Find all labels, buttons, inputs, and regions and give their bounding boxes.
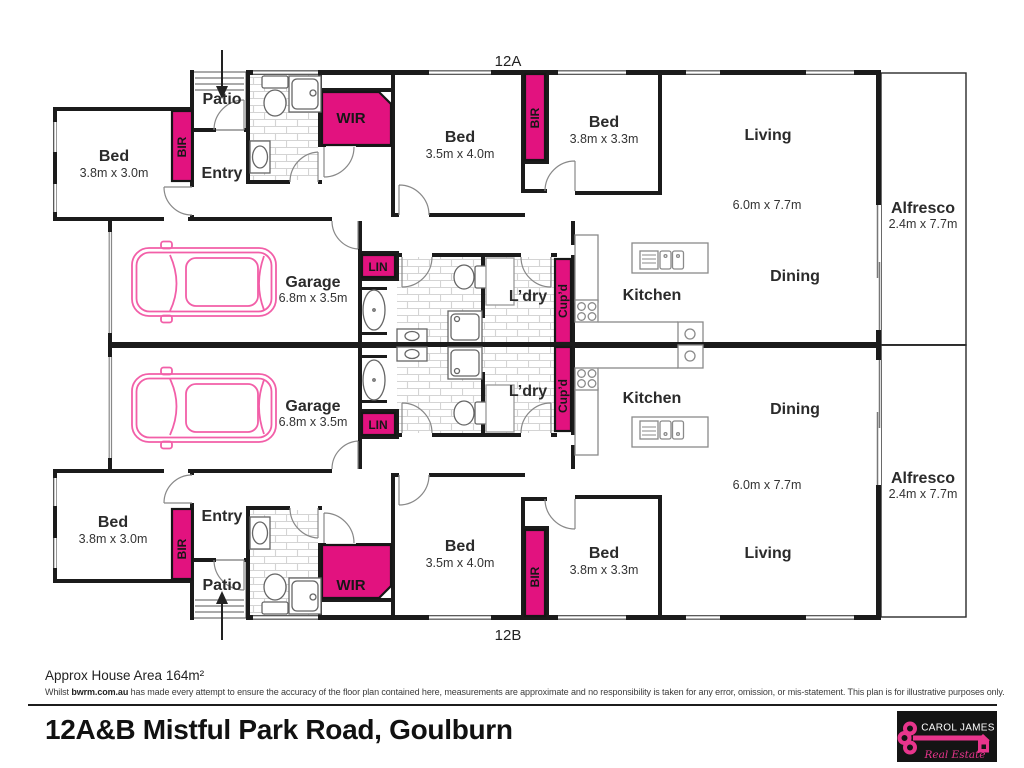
toilet-icon	[454, 265, 474, 289]
closet-label-bir: BIR	[528, 566, 542, 587]
closet-label-cupd: Cup’d	[556, 284, 570, 318]
closet-label-lin: LIN	[368, 418, 387, 432]
house-area-note: Approx House Area 164m²	[45, 668, 204, 683]
room-dim-garage: 6.8m x 3.5m	[279, 291, 348, 305]
room-label-bed: Bed	[589, 545, 619, 562]
closet-label-bir: BIR	[528, 107, 542, 128]
sink-bowl-icon	[673, 251, 684, 269]
room-label-bed: Bed	[98, 514, 128, 531]
sliding-door	[876, 205, 881, 330]
kitchen-counter	[575, 235, 598, 302]
room-label-entry: Entry	[202, 508, 243, 525]
garage-door	[109, 232, 111, 333]
room-label-laundry: L’dry	[509, 288, 547, 305]
room-label-garage: Garage	[285, 274, 340, 291]
room-label-laundry: L’dry	[509, 383, 547, 400]
agency-logo: CAROL JAMES Real Estate	[897, 711, 997, 762]
room-label-kitchen: Kitchen	[623, 287, 682, 304]
property-address-title: 12A&B Mistful Park Road, Goulburn	[45, 714, 513, 746]
room-dim-bed: 3.8m x 3.3m	[570, 563, 639, 577]
room-label-entry: Entry	[202, 165, 243, 182]
room-dim-bed: 3.5m x 4.0m	[426, 147, 495, 161]
room-label-living: Living	[744, 545, 791, 562]
closet-label-bir: BIR	[175, 538, 189, 559]
drainer-icon	[640, 251, 658, 269]
room-label-alfresco: Alfresco	[891, 470, 955, 487]
room-label-patio: Patio	[202, 577, 241, 594]
room-label-bed: Bed	[99, 148, 129, 165]
closet-label-bir: BIR	[175, 136, 189, 157]
logo-tagline: Real Estate	[923, 749, 985, 761]
room-label-dining: Dining	[770, 401, 820, 418]
room-label-living: Living	[744, 127, 791, 144]
disclaimer-source: bwrm.com.au	[71, 687, 128, 697]
room-label-dining: Dining	[770, 268, 820, 285]
room-dim-bed: 3.5m x 4.0m	[426, 556, 495, 570]
room-dim-bed: 3.8m x 3.0m	[79, 532, 148, 546]
room-label-patio: Patio	[202, 91, 241, 108]
room-label-kitchen: Kitchen	[623, 390, 682, 407]
disclaimer-rest: has made every attempt to ensure the acc…	[128, 687, 1004, 697]
room-dim-living: 6.0m x 7.7m	[733, 478, 802, 492]
floorplan-canvas: 12A 12B Bed 3.8m x 3.0m BIR Entry Patio …	[0, 0, 1024, 660]
room-dim-garage: 6.8m x 3.5m	[279, 415, 348, 429]
room-label-bed: Bed	[445, 538, 475, 555]
room-label-garage: Garage	[285, 398, 340, 415]
unit-label-12a: 12A	[495, 53, 522, 70]
closet-label-cupd: Cup’d	[556, 379, 570, 413]
unit-label-12b: 12B	[495, 627, 522, 644]
footer-divider	[28, 704, 997, 706]
logo-agency-name: CAROL JAMES	[921, 723, 995, 734]
room-dim-bed: 3.8m x 3.0m	[80, 166, 149, 180]
closet-label-wir: WIR	[336, 577, 365, 594]
sink-bowl-icon	[660, 251, 671, 269]
room-dim-alfresco: 2.4m x 7.7m	[889, 487, 958, 501]
room-dim-bed: 3.8m x 3.3m	[570, 132, 639, 146]
room-label-bed: Bed	[445, 129, 475, 146]
disclaimer-text: Whilst bwrm.com.au has made every attemp…	[45, 687, 1005, 697]
prep-sink-cabinet	[678, 322, 703, 345]
room-label-alfresco: Alfresco	[891, 200, 955, 217]
car-icon	[132, 242, 276, 323]
floorplan-page: 12A 12B Bed 3.8m x 3.0m BIR Entry Patio …	[0, 0, 1024, 768]
toilet-icon	[262, 76, 288, 88]
closet-label-wir: WIR	[336, 110, 365, 127]
room-dim-alfresco: 2.4m x 7.7m	[889, 217, 958, 231]
patio-area	[193, 50, 246, 130]
room-dim-living: 6.0m x 7.7m	[733, 198, 802, 212]
disclaimer-prefix: Whilst	[45, 687, 71, 697]
closet-label-lin: LIN	[368, 260, 387, 274]
room-label-bed: Bed	[589, 114, 619, 131]
